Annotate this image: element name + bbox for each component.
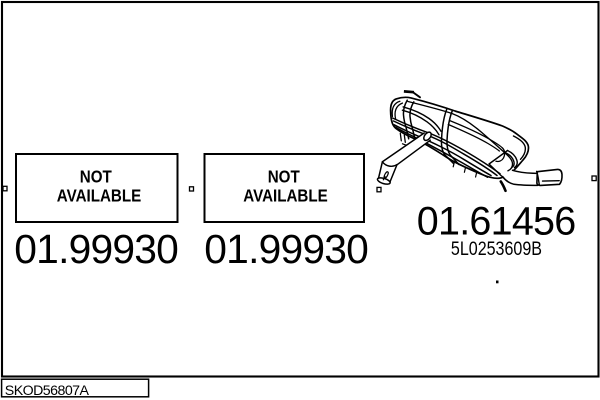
- svg-text:SKOD56807A: SKOD56807A: [5, 383, 90, 399]
- svg-text:01.99930: 01.99930: [14, 226, 178, 272]
- svg-text:NOT: NOT: [80, 167, 112, 186]
- svg-text:01.99930: 01.99930: [204, 226, 368, 272]
- svg-text:5L0253609B: 5L0253609B: [451, 238, 542, 260]
- svg-text:NOT: NOT: [268, 167, 300, 186]
- svg-text:AVAILABLE: AVAILABLE: [57, 186, 141, 205]
- svg-text:AVAILABLE: AVAILABLE: [243, 186, 327, 205]
